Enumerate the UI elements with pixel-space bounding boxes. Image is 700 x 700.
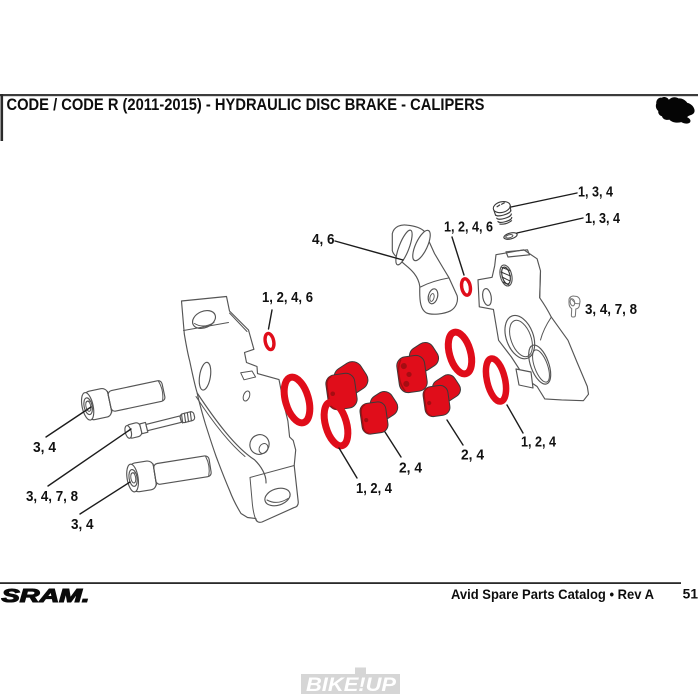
svg-text:3, 4: 3, 4: [71, 516, 94, 533]
svg-text:1, 3, 4: 1, 3, 4: [578, 184, 614, 201]
svg-text:SRAM.: SRAM.: [2, 586, 90, 606]
svg-text:4, 6: 4, 6: [312, 231, 335, 248]
svg-text:3, 4: 3, 4: [33, 439, 57, 456]
svg-text:3, 4, 7, 8: 3, 4, 7, 8: [26, 488, 78, 505]
svg-text:1, 2, 4: 1, 2, 4: [356, 480, 393, 497]
svg-text:1, 3, 4: 1, 3, 4: [585, 210, 621, 227]
svg-text:Avid Spare Parts Catalog • Rev: Avid Spare Parts Catalog • Rev A: [451, 586, 654, 602]
svg-text:2, 4: 2, 4: [461, 447, 485, 464]
svg-text:BIKE!UP: BIKE!UP: [306, 675, 396, 696]
svg-text:3, 4, 7, 8: 3, 4, 7, 8: [585, 301, 637, 318]
svg-text:1, 2, 4: 1, 2, 4: [521, 434, 557, 451]
svg-text:1, 2, 4, 6: 1, 2, 4, 6: [262, 289, 313, 306]
svg-text:CODE / CODE R (2011-2015) - HY: CODE / CODE R (2011-2015) - HYDRAULIC DI…: [7, 96, 485, 114]
svg-text:2, 4: 2, 4: [399, 460, 423, 477]
svg-text:51: 51: [683, 587, 699, 602]
svg-text:1, 2, 4, 6: 1, 2, 4, 6: [444, 219, 493, 236]
